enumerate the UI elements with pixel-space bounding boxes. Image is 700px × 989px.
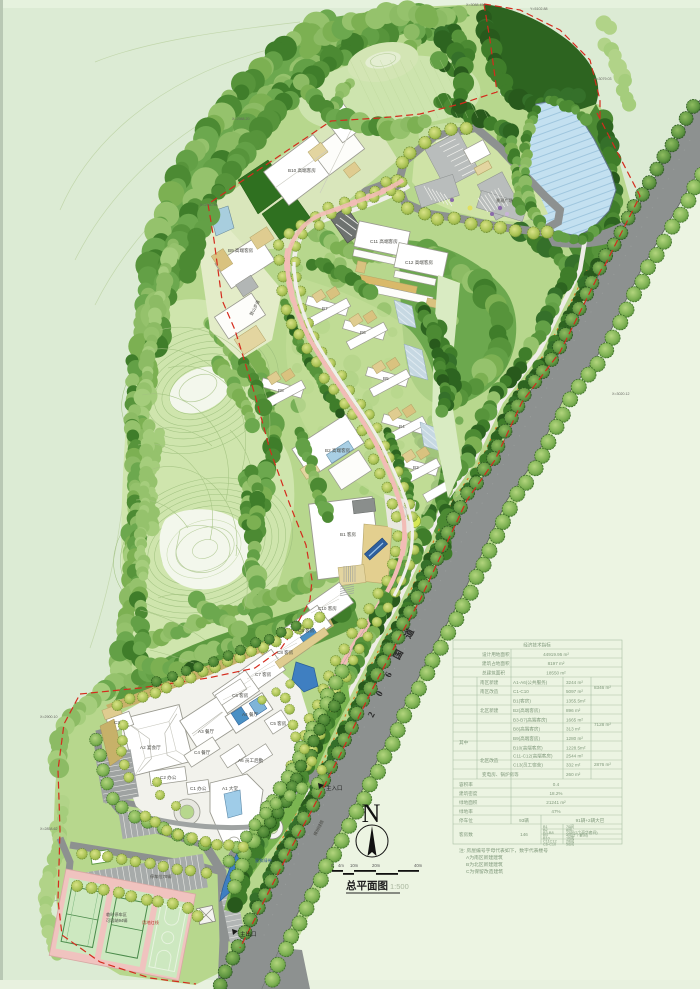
svg-text:X=3079.03: X=3079.03 (594, 77, 612, 81)
svg-text:C6-C10: C6-C10 (543, 842, 556, 846)
svg-text:X=2900.10: X=2900.10 (40, 715, 58, 719)
svg-text:C10 客房: C10 客房 (318, 605, 337, 612)
svg-text:停车位70辆: 停车位70辆 (150, 873, 171, 880)
svg-text:B3: B3 (413, 465, 419, 470)
svg-text:2544 m²: 2544 m² (566, 754, 583, 759)
svg-text:146: 146 (520, 832, 528, 837)
svg-text:设计用地面积: 设计用地面积 (482, 651, 510, 658)
svg-text:8346 m²: 8346 m² (594, 685, 611, 690)
svg-text:1:500: 1:500 (390, 882, 409, 891)
svg-text:C9 客房: C9 客房 (298, 627, 315, 634)
svg-text:1355.5m²: 1355.5m² (566, 699, 586, 704)
svg-text:B2(高端客房): B2(高端客房) (513, 707, 541, 714)
svg-text:绿地面积: 绿地面积 (459, 799, 478, 806)
svg-text:1280 m²: 1280 m² (566, 736, 583, 741)
svg-text:B9 高端客房: B9 高端客房 (228, 247, 254, 254)
svg-text:B10 高端客房: B10 高端客房 (288, 167, 316, 174)
svg-text:B7: B7 (322, 306, 328, 311)
svg-text:C1 办公: C1 办公 (190, 785, 207, 792)
svg-text:C4 餐厅: C4 餐厅 (194, 749, 211, 756)
svg-text:Y=5102.88: Y=5102.88 (530, 7, 548, 11)
svg-text:景观广场: 景观广场 (496, 197, 513, 204)
svg-text:B4: B4 (399, 424, 405, 429)
svg-text:91辆+2辆大巴: 91辆+2辆大巴 (576, 817, 605, 824)
svg-text:B10(高端客房): B10(高端客房) (513, 745, 543, 752)
svg-text:A为南区新建建筑: A为南区新建建筑 (466, 854, 503, 861)
svg-text:建筑密度: 建筑密度 (459, 790, 478, 797)
svg-text:B5: B5 (383, 376, 389, 381)
svg-text:用地红线: 用地红线 (142, 919, 160, 926)
svg-text:332 m²: 332 m² (566, 763, 581, 768)
svg-text:896 m²: 896 m² (566, 708, 581, 713)
svg-text:临时停车区: 临时停车区 (106, 911, 127, 918)
svg-text:B为北区新建建筑: B为北区新建建筑 (466, 861, 503, 868)
svg-text:主入口: 主入口 (326, 784, 343, 792)
svg-text:7128 m²: 7128 m² (594, 722, 611, 727)
svg-text:北区改造: 北区改造 (480, 757, 499, 764)
svg-text:C3: C3 (114, 720, 120, 725)
svg-text:A1 大堂: A1 大堂 (222, 785, 238, 792)
svg-text:C13(员工宿舍): C13(员工宿舍) (513, 762, 543, 769)
svg-text:20m: 20m (372, 863, 381, 868)
svg-text:A4 餐厅: A4 餐厅 (242, 711, 258, 718)
svg-text:容积率: 容积率 (459, 781, 473, 788)
svg-text:北区新建: 北区新建 (480, 707, 499, 714)
svg-text:B1(客房): B1(客房) (513, 698, 531, 705)
svg-text:313 m²: 313 m² (566, 727, 581, 732)
svg-text:A6 员工后勤: A6 员工后勤 (238, 757, 264, 764)
svg-text:注: 房屋编号字母代表如下，数字代表楼号: 注: 房屋编号字母代表如下，数字代表楼号 (459, 847, 548, 854)
svg-text:A2 宴会厅: A2 宴会厅 (140, 744, 161, 751)
svg-text:4m: 4m (338, 863, 344, 868)
svg-text:1665 m²: 1665 m² (566, 717, 583, 722)
svg-text:18.2%: 18.2% (549, 791, 562, 796)
svg-text:C1-C10: C1-C10 (513, 689, 529, 694)
svg-text:C11 高端客房: C11 高端客房 (370, 238, 398, 245)
svg-text:绿地率: 绿地率 (459, 808, 473, 815)
svg-text:260 m²: 260 m² (566, 772, 581, 777)
svg-text:8197 m²: 8197 m² (548, 661, 565, 666)
svg-text:B1 客房: B1 客房 (340, 531, 356, 538)
svg-text:56间: 56间 (566, 841, 574, 846)
svg-text:3244 m²: 3244 m² (566, 680, 583, 685)
svg-text:B9(高端客房): B9(高端客房) (513, 735, 541, 742)
svg-text:0.4: 0.4 (553, 782, 560, 787)
svg-text:X=2960.44: X=2960.44 (200, 203, 218, 207)
svg-text:1228.5m²: 1228.5m² (566, 746, 586, 751)
svg-text:A3 餐厅: A3 餐厅 (198, 728, 214, 735)
svg-text:C6 客房: C6 客房 (232, 692, 249, 699)
svg-text:2876 m²: 2876 m² (594, 762, 611, 767)
svg-text:93辆: 93辆 (519, 817, 529, 824)
svg-text:10m: 10m (350, 863, 359, 868)
svg-text:B6: B6 (360, 330, 366, 335)
svg-text:可容纳94辆: 可容纳94辆 (106, 917, 127, 924)
svg-text:变电房、锅炉房等: 变电房、锅炉房等 (482, 771, 519, 778)
svg-text:其中: 其中 (459, 739, 469, 746)
svg-text:C7 客房: C7 客房 (255, 671, 272, 678)
svg-text:C12 高端客房: C12 高端客房 (405, 259, 433, 266)
svg-text:南区改造: 南区改造 (480, 688, 499, 695)
svg-text:X=3020.12: X=3020.12 (612, 392, 630, 396)
svg-text:A1-A6(公共服务): A1-A6(公共服务) (513, 679, 548, 686)
svg-text:40m: 40m (414, 863, 423, 868)
svg-text:B3-B7(高端客房): B3-B7(高端客房) (513, 716, 548, 723)
svg-text:星和绿带: 星和绿带 (255, 857, 272, 864)
svg-text:N: N (362, 799, 381, 828)
svg-text:C11-C12(高端客房): C11-C12(高端客房) (513, 753, 553, 760)
svg-text:B8: B8 (278, 388, 284, 393)
svg-text:经济技术指标: 经济技术指标 (523, 642, 551, 649)
svg-text:停车位: 停车位 (459, 817, 473, 824)
svg-text:X=2858.62: X=2858.62 (40, 827, 58, 831)
svg-text:客房数: 客房数 (459, 831, 473, 838)
svg-text:主出口: 主出口 (240, 930, 257, 938)
svg-text:总平面图: 总平面图 (346, 879, 388, 892)
svg-text:C为保留改造建筑: C为保留改造建筑 (466, 868, 503, 875)
svg-text:总建筑面积: 总建筑面积 (482, 670, 505, 677)
svg-text:B8(高端客房): B8(高端客房) (513, 726, 541, 733)
svg-text:18550 m²: 18550 m² (546, 671, 566, 676)
svg-text:南区新建: 南区新建 (480, 679, 499, 686)
svg-text:X=2988.20: X=2988.20 (232, 117, 250, 121)
svg-text:47%: 47% (551, 809, 560, 814)
svg-text:B2 高端客房: B2 高端客房 (325, 447, 351, 454)
svg-text:44919.95 m²: 44919.95 m² (543, 652, 569, 657)
svg-text:C2 办公: C2 办公 (160, 774, 177, 781)
svg-text:X=3088.456: X=3088.456 (466, 3, 486, 7)
svg-text:5097 m²: 5097 m² (566, 689, 583, 694)
svg-text:21241 m²: 21241 m² (546, 800, 566, 805)
svg-text:C8 客房: C8 客房 (277, 649, 294, 656)
svg-text:建筑占地面积: 建筑占地面积 (482, 660, 510, 667)
svg-text:C5 客房: C5 客房 (270, 720, 287, 727)
